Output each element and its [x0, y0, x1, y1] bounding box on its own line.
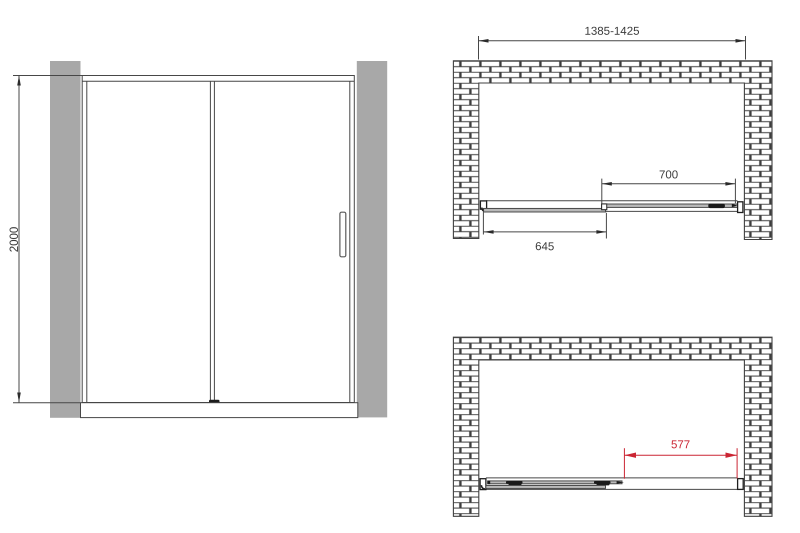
svg-text:1385-1425: 1385-1425	[584, 26, 639, 38]
svg-text:577: 577	[671, 439, 690, 451]
svg-text:700: 700	[659, 169, 678, 181]
svg-text:2000: 2000	[9, 227, 21, 253]
svg-text:645: 645	[535, 241, 554, 253]
